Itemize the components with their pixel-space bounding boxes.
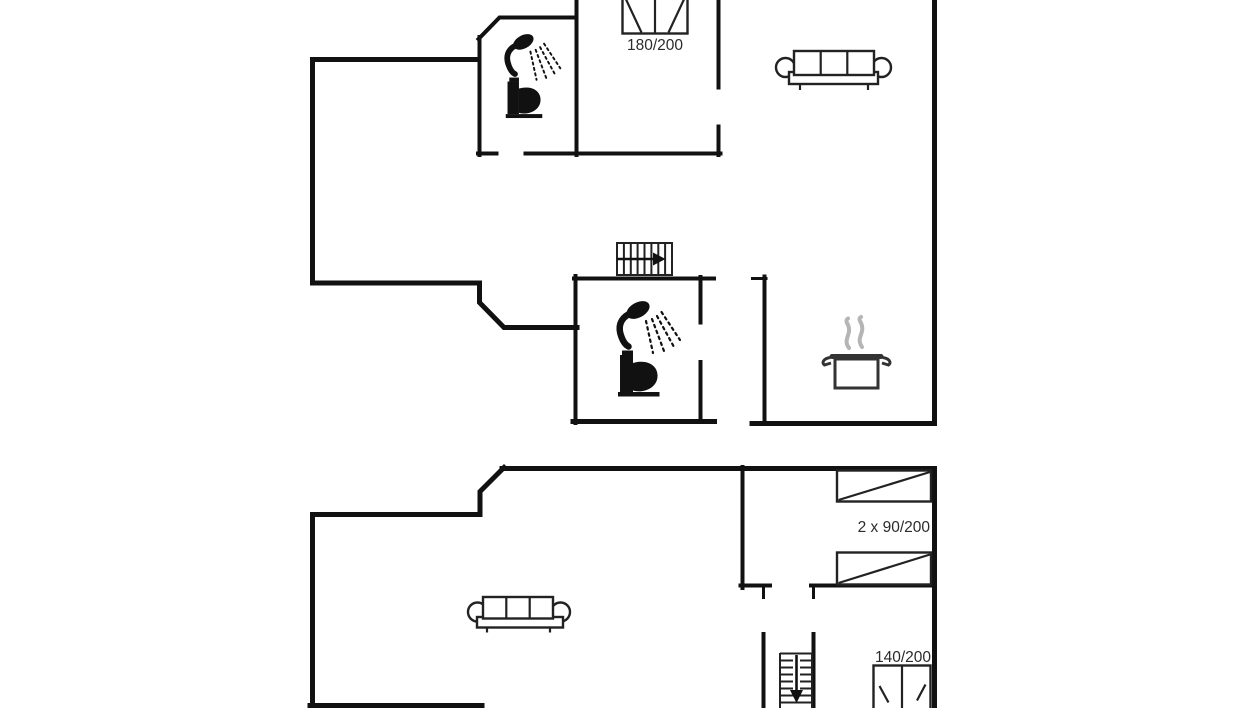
double-bed-icon-180 — [623, 0, 688, 34]
cooking-pot-icon — [823, 317, 890, 388]
steam-icon — [860, 317, 863, 347]
floor-plan-page: 180/200 — [0, 0, 1246, 708]
stairs-down-icon — [780, 653, 812, 708]
floor-plan-canvas: 180/200 — [0, 0, 1246, 708]
bed-size-label-2x90: 2 x 90/200 — [858, 519, 931, 536]
upper-floor-plan: 180/200 — [313, 0, 935, 424]
bed-size-label-140: 140/200 — [875, 649, 931, 666]
single-bed-icon-bottom — [837, 553, 931, 585]
stairs-up-icon — [617, 243, 672, 275]
double-bed-icon-140 — [874, 666, 931, 708]
steam-icon — [847, 319, 850, 349]
sofa-icon-upper — [776, 51, 891, 90]
single-bed-icon-top — [837, 471, 931, 502]
lower-floor-plan: 2 x 90/200 140/200 — [310, 467, 935, 708]
bathroom-top-icons — [506, 31, 561, 118]
bed-size-label-180: 180/200 — [627, 37, 683, 54]
lower-floor-walls — [310, 467, 935, 708]
bathroom-middle-icons — [618, 298, 680, 397]
sofa-icon-lower — [468, 597, 570, 633]
